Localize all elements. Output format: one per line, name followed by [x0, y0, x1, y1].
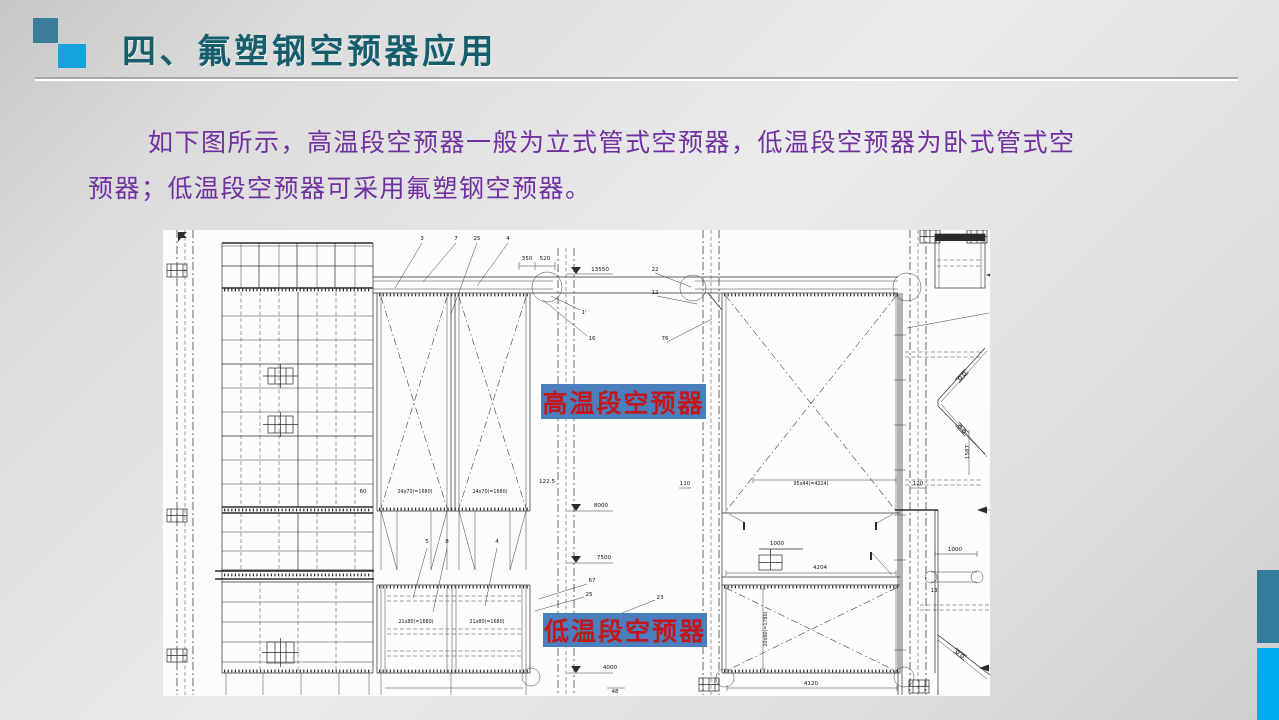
- dim-label: 67: [588, 578, 596, 584]
- paragraph-line: 预器；低温段空预器可采用氟塑钢空预器。: [88, 166, 1148, 212]
- far-right-structure: [894, 230, 990, 695]
- dim-label: 60: [359, 489, 367, 495]
- dim-label: 13550: [591, 267, 609, 273]
- dim-label: 4000: [603, 665, 618, 671]
- dim-label: 48: [611, 689, 619, 695]
- dim-label: 1000: [770, 541, 785, 547]
- dim-label: 520: [540, 256, 551, 262]
- dim-label: 25: [585, 592, 593, 598]
- dim-label: 76: [661, 336, 669, 342]
- page-title: 四、氟塑钢空预器应用: [122, 24, 497, 73]
- slide: 四、氟塑钢空预器应用 如下图所示，高温段空预器一般为立式管式空预器，低温段空预器…: [0, 0, 1279, 720]
- dim-label: 20x90(=1780): [763, 611, 769, 646]
- access-door: [759, 549, 803, 570]
- dim-label: 1': [581, 310, 586, 316]
- top-duct: [373, 277, 898, 293]
- low-temp-label: 低温段空预器: [543, 613, 707, 647]
- dim-label: 1000: [948, 547, 963, 553]
- dim-label: 1587: [965, 444, 971, 459]
- dim-label: 21x80(=1680): [469, 619, 504, 625]
- dim-label: 8000: [594, 503, 609, 509]
- access-door: [262, 638, 299, 667]
- dim-label: 13: [930, 588, 938, 594]
- dim-label: 3: [420, 236, 424, 242]
- dim-label: 25: [473, 236, 481, 242]
- low-temp-section: [377, 585, 540, 695]
- dim-label: 4: [506, 236, 510, 242]
- dim-label: 16: [588, 336, 596, 342]
- decor-square-light: [58, 44, 86, 68]
- dim-label: 95x44(=4224): [793, 481, 828, 487]
- title-divider: [35, 77, 1238, 81]
- dim-label: 7: [454, 236, 458, 242]
- dim-label: 24x70(=1680): [397, 489, 432, 495]
- access-door: [263, 364, 298, 388]
- high-temp-label: 高温段空预器: [541, 384, 706, 419]
- dim-label: 12: [651, 290, 658, 296]
- dim-label: 120: [913, 481, 924, 487]
- dim-label: 8: [445, 539, 449, 545]
- dim-label: 5: [425, 539, 429, 545]
- boiler-grid: [215, 243, 374, 695]
- cad-figure: 37254350520135501'162212766024x70(=1680)…: [163, 230, 990, 696]
- dim-label: 110: [680, 481, 691, 487]
- dim-label: 7500: [597, 555, 612, 561]
- dim-label: 4: [495, 539, 499, 545]
- dim-label: 122.5: [539, 479, 555, 485]
- paragraph-line: 如下图所示，高温段空预器一般为立式管式空预器，低温段空预器为卧式管式空: [88, 120, 1148, 166]
- left-column-lines: [167, 230, 193, 695]
- accent-bar-teal: [1257, 570, 1279, 643]
- dim-label: 22: [651, 267, 658, 273]
- dim-label: 4204: [813, 565, 828, 571]
- dim-label: 21x80(=1680): [398, 619, 433, 625]
- dim-label: 350: [522, 256, 533, 262]
- body-paragraph: 如下图所示，高温段空预器一般为立式管式空预器，低温段空预器为卧式管式空 预器；低…: [88, 120, 1148, 212]
- dim-label: 24x70(=1680): [472, 489, 507, 495]
- decor-square-dark: [33, 18, 58, 43]
- accent-bar-blue: [1257, 648, 1279, 720]
- access-door: [263, 412, 298, 437]
- dim-label: 4120: [804, 681, 819, 687]
- dim-label: 23: [656, 595, 664, 601]
